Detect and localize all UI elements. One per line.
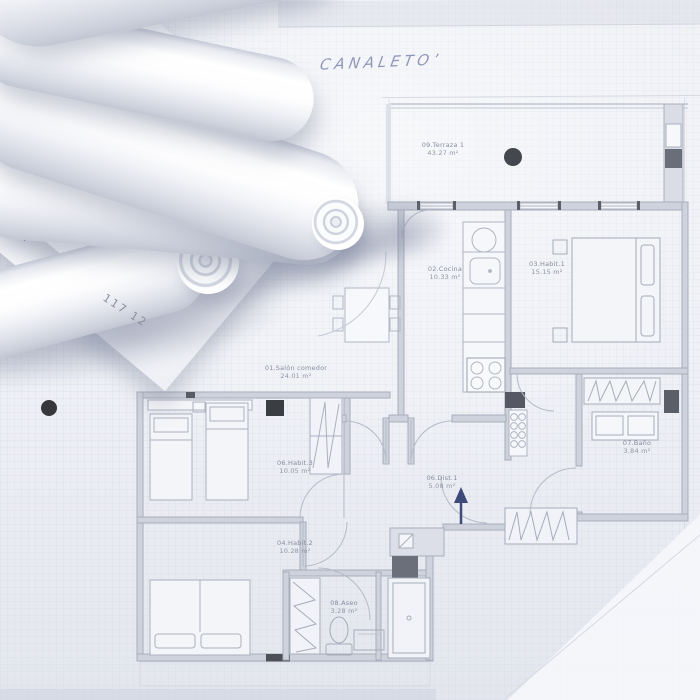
room-area: 10.28 m² (250, 547, 340, 555)
bed-habit2 (150, 580, 250, 655)
lower-strip (140, 662, 430, 686)
room-label-dist1: 06.Dist.1 5.08 m² (397, 474, 487, 490)
room-name: 06.Habit.3 (277, 459, 313, 467)
room-name: 07.Baño (623, 439, 651, 447)
room-area: 15.15 m² (502, 268, 592, 276)
bathroom-fixtures (584, 378, 660, 440)
room-label-bano: 07.Baño 3.84 m² (592, 439, 682, 455)
room-name: 06.Dist.1 (426, 474, 457, 482)
room-area: 24.01 m² (251, 372, 341, 380)
paper-weight-dot (41, 400, 57, 416)
room-area: 5.08 m² (397, 482, 487, 490)
room-name: 02.Cocina (428, 265, 462, 273)
utility-shaft (390, 528, 444, 582)
room-name: 04.Habit.2 (277, 539, 313, 547)
room-label-cocina: 02.Cocina 10.33 m² (400, 265, 490, 281)
room-name: 03.Habit.1 (529, 260, 565, 268)
room-area: 3.28 m² (299, 607, 389, 615)
blueprint-photo: CANALETO’ 09.Terraza 1 43.27 m² 02.Cocin… (0, 0, 700, 700)
room-area: 10.05 m² (250, 467, 340, 475)
room-name: 09.Terraza 1 (422, 141, 464, 149)
room-label-habit3: 06.Habit.3 10.05 m² (250, 459, 340, 475)
room-area: 43.27 m² (398, 149, 488, 157)
corridor-wardrobe (505, 508, 577, 544)
room-label-habit1: 03.Habit.1 15.15 m² (502, 260, 592, 276)
room-area: 3.84 m² (592, 447, 682, 455)
room-label-aseo: 08.Aseo 3.28 m² (299, 599, 389, 615)
paper-roll-curl-small (312, 198, 364, 250)
room-area: 10.33 m² (400, 273, 490, 281)
habit3-furniture (148, 398, 342, 500)
salon-table (333, 288, 400, 342)
room-label-salon: 01.Salón comedor 24.01 m² (251, 364, 341, 380)
room-name: 08.Aseo (330, 599, 358, 607)
room-name: 01.Salón comedor (265, 364, 327, 372)
bed-habit1 (553, 238, 660, 342)
room-label-terraza: 09.Terraza 1 43.27 m² (398, 141, 488, 157)
room-label-habit2: 04.Habit.2 10.28 m² (250, 539, 340, 555)
